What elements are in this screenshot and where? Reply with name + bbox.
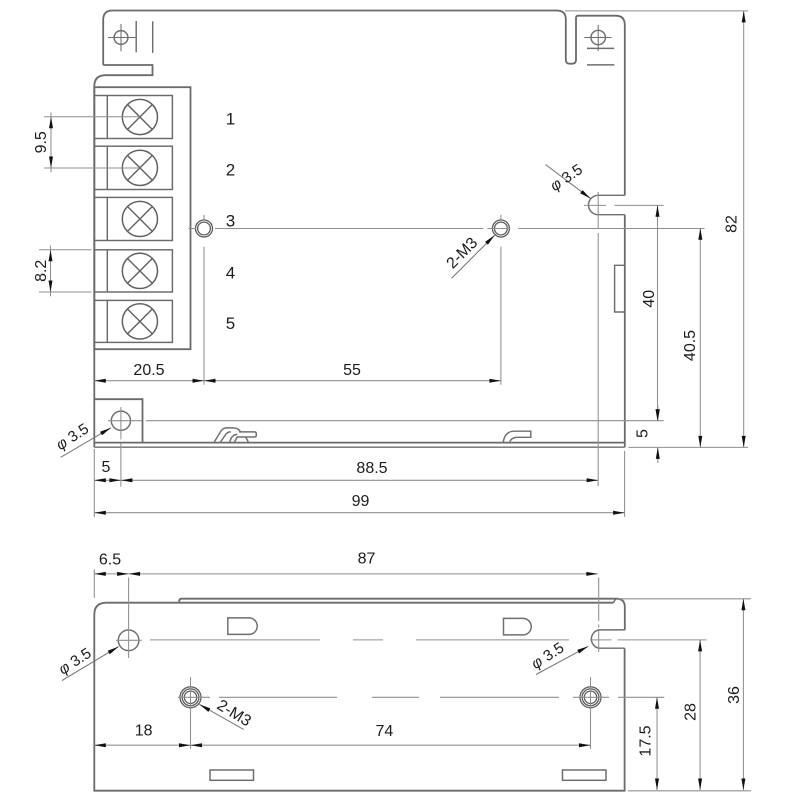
svg-text:18: 18	[135, 723, 153, 740]
svg-text:17.5: 17.5	[637, 725, 654, 756]
svg-text:40: 40	[641, 290, 658, 308]
svg-text:5: 5	[634, 429, 651, 438]
svg-text:82: 82	[723, 215, 740, 233]
svg-text:5: 5	[102, 459, 111, 476]
svg-text:4: 4	[226, 264, 235, 283]
svg-text:1: 1	[226, 110, 235, 129]
svg-text:8.2: 8.2	[33, 260, 50, 282]
svg-text:5: 5	[226, 314, 235, 333]
svg-text:88.5: 88.5	[356, 460, 387, 477]
svg-text:2: 2	[226, 160, 235, 179]
svg-text:20.5: 20.5	[133, 362, 164, 379]
svg-text:40.5: 40.5	[682, 330, 699, 361]
svg-text:3: 3	[226, 212, 235, 231]
svg-text:36: 36	[726, 686, 743, 704]
svg-text:9.5: 9.5	[33, 131, 50, 153]
svg-text:99: 99	[352, 493, 370, 510]
svg-text:55: 55	[343, 362, 361, 379]
svg-text:87: 87	[358, 551, 376, 568]
svg-text:28: 28	[682, 703, 699, 721]
svg-text:74: 74	[376, 723, 394, 740]
svg-text:6.5: 6.5	[99, 551, 121, 568]
